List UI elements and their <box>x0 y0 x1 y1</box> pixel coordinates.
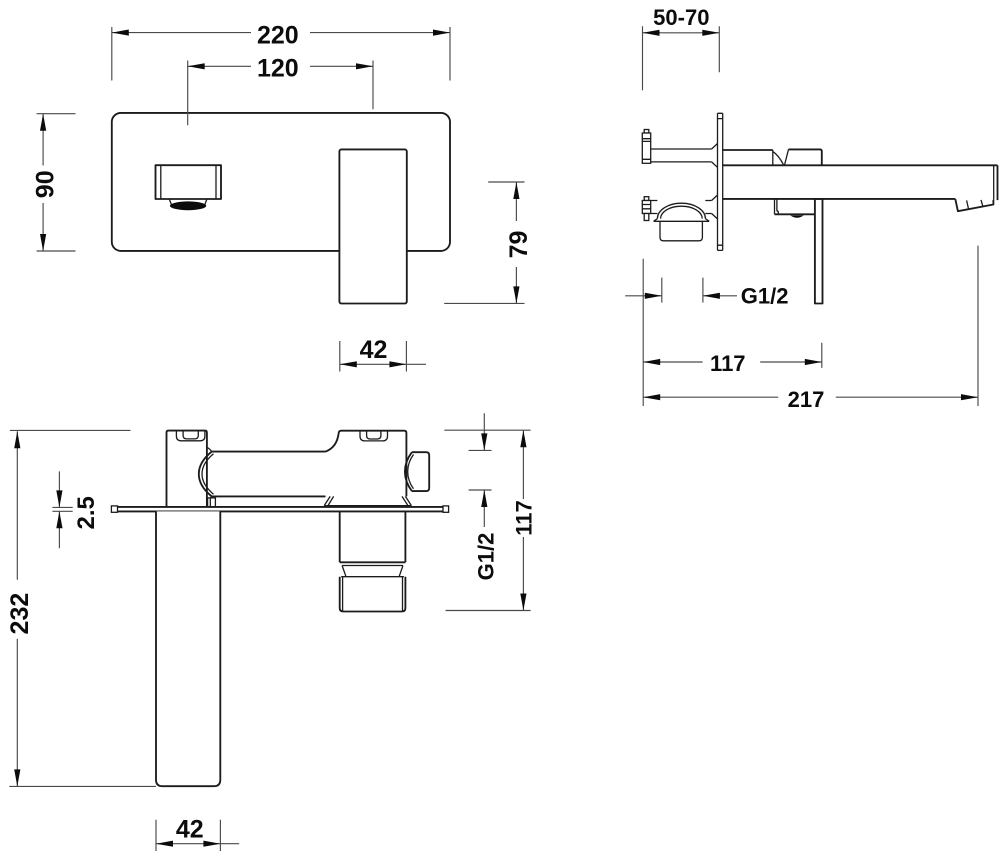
svg-text:120: 120 <box>257 54 299 82</box>
svg-text:117: 117 <box>511 500 536 536</box>
svg-text:G1/2: G1/2 <box>474 533 499 581</box>
svg-text:42: 42 <box>176 815 204 843</box>
svg-text:220: 220 <box>257 22 299 50</box>
svg-text:G1/2: G1/2 <box>741 284 789 309</box>
svg-text:50-70: 50-70 <box>653 5 709 30</box>
svg-text:42: 42 <box>360 336 388 364</box>
svg-text:79: 79 <box>505 231 533 259</box>
svg-text:217: 217 <box>788 387 825 412</box>
svg-text:90: 90 <box>32 170 60 198</box>
svg-text:2.5: 2.5 <box>73 496 100 529</box>
svg-text:117: 117 <box>710 351 746 376</box>
svg-text:232: 232 <box>6 593 34 635</box>
